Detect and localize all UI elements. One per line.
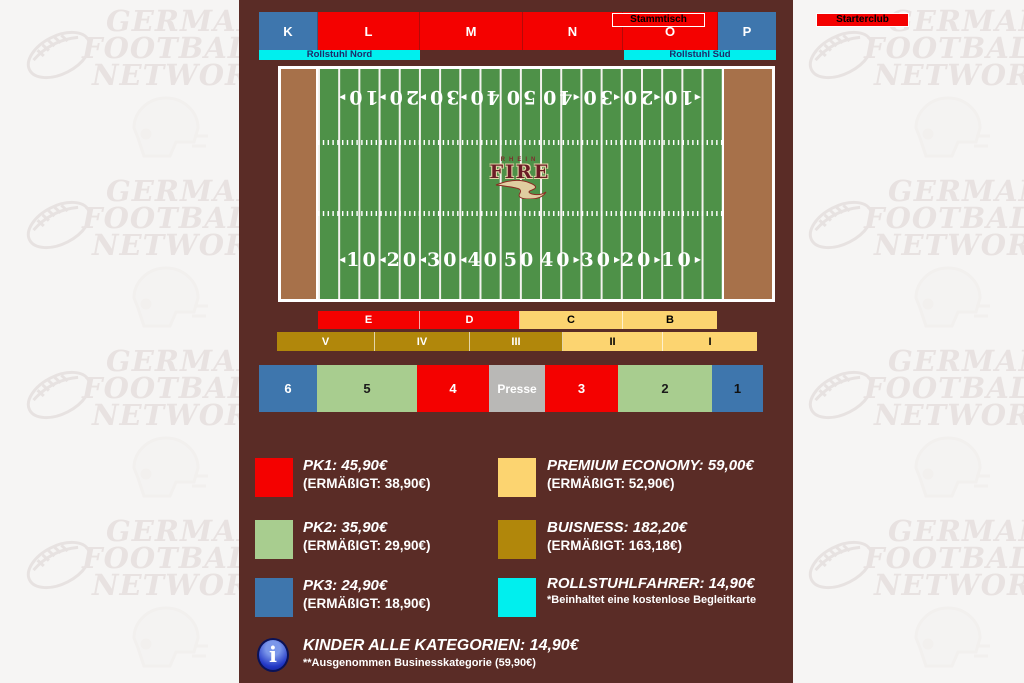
section-4: 4 [417,365,489,412]
yard-number: 30▶ [419,84,460,110]
watermark-tile: GERMAN FOOTBALL NETWORK [24,346,234,511]
watermark-tile: GERMAN FOOTBALL NETWORK [806,6,1016,171]
section-iv: IV [375,332,470,351]
stand-section-n: N [523,12,623,50]
wheelchair-zone-north: Rollstuhl Nord [259,50,420,60]
yard-number: ◀10 [338,247,379,273]
legend-note: *Beinhaltet eine kostenlose Begleitkarte [547,593,756,608]
section-e: E [318,311,420,329]
yard-number: 50 [504,84,536,110]
legend-title: KINDER ALLE KATEGORIEN: 14,90€ [303,636,579,656]
stand-section-m: M [420,12,523,50]
endzone-right [722,69,772,299]
section-1: 1 [712,365,763,412]
yard-number: 40▶ [540,247,581,273]
yard-number: ◀40 [459,247,500,273]
yard-number: 10▶ [338,84,379,110]
yard-number: 20▶ [621,247,662,273]
legend-swatch-business [498,520,536,559]
legend-subtitle: (ERMÄßIGT: 18,90€) [303,595,431,613]
yard-numbers-bottom: ◀10◀20◀30◀405040▶30▶20▶10▶ [318,247,722,273]
section-i: I [663,332,757,351]
section-d: D [420,311,520,329]
seating-chart-poster: { "top_stand": { "sections": [ { "label"… [0,0,1024,683]
helmet-icon [906,434,996,504]
yard-numbers-top: ◀10◀20◀30◀405040▶30▶20▶10▶ [318,84,722,110]
yard-number: 30▶ [580,247,621,273]
legend-item-premium: PREMIUM ECONOMY: 59,00€ (ERMÄßIGT: 52,90… [547,456,754,493]
legend-item-pk3: PK3: 24,90€ (ERMÄßIGT: 18,90€) [303,576,431,613]
info-icon: i [257,638,289,672]
football-field: ◀10◀20◀30◀405040▶30▶20▶10▶ ◀10◀20◀30◀405… [278,66,775,302]
helmet-icon [124,94,214,164]
stand-section-k: K [259,12,318,50]
section-2: 2 [618,365,712,412]
section-6: 6 [259,365,317,412]
yard-number: ◀40 [540,84,581,110]
section-b: B [623,311,717,329]
watermark-line: NETWORK [864,572,1024,599]
legend-item-pk1: PK1: 45,90€ (ERMÄßIGT: 38,90€) [303,456,431,493]
watermark-line: NETWORK [864,232,1024,259]
legend-title: PK1: 45,90€ [303,456,431,475]
legend-swatch-wheelchair [498,578,536,617]
helmet-icon [906,604,996,674]
yard-number: ◀10 [661,84,702,110]
stand-section-p: P [718,12,776,50]
legend-item-wheelchair: ROLLSTUHLFAHRER: 14,90€ *Beinhaltet eine… [547,574,756,608]
watermark-text: GERMAN FOOTBALL NETWORK [864,178,1024,259]
team-logo: RHEIN FIRE [460,157,580,204]
wheelchair-zone-south: Rollstuhl Süd [624,50,776,60]
legend-title: PK3: 24,90€ [303,576,431,595]
yard-number: ◀30 [581,84,622,110]
yard-number: ◀20 [621,84,662,110]
legend-title: BUISNESS: 182,20€ [547,518,687,537]
legend-item-kinder: KINDER ALLE KATEGORIEN: 14,90€ **Ausgeno… [303,636,579,671]
legend-item-pk2: PK2: 35,90€ (ERMÄßIGT: 29,90€) [303,518,431,555]
section-v: V [277,332,375,351]
watermark-tile: GERMAN FOOTBALL NETWORK [806,516,1016,681]
watermark-tile: GERMAN FOOTBALL NETWORK [806,346,1016,511]
legend-title: PREMIUM ECONOMY: 59,00€ [547,456,754,475]
watermark-tile: GERMAN FOOTBALL NETWORK [24,176,234,341]
starterclub-box: Starterclub [816,13,909,27]
watermark-tile: GERMAN FOOTBALL NETWORK [24,516,234,681]
yard-number: ◀20 [378,247,419,273]
legend-subtitle: (ERMÄßIGT: 29,90€) [303,537,431,555]
legend-subtitle: (ERMÄßIGT: 52,90€) [547,475,754,493]
watermark-tile: GERMAN FOOTBALL NETWORK [806,176,1016,341]
watermark-line: NETWORK [864,62,1024,89]
legend-swatch-pk3 [255,578,293,617]
flame-icon [492,179,548,199]
legend-title: ROLLSTUHLFAHRER: 14,90€ [547,574,756,593]
helmet-icon [124,434,214,504]
yard-number: 50 [504,247,536,273]
section-presse: Presse [489,365,545,412]
watermark-text: GERMAN FOOTBALL NETWORK [864,518,1024,599]
watermark-line: NETWORK [864,402,1024,429]
legend-swatch-pk2 [255,520,293,559]
hash-marks-bottom [318,211,722,216]
hash-marks-top [318,140,722,145]
endzone-left [281,69,318,299]
legend-subtitle: (ERMÄßIGT: 163,18€) [547,537,687,555]
helmet-icon [124,264,214,334]
watermark-text: GERMAN FOOTBALL NETWORK [864,348,1024,429]
watermark-tile: GERMAN FOOTBALL NETWORK [24,6,234,171]
section-3: 3 [545,365,618,412]
section-iii: III [470,332,563,351]
stadium-map-panel: K L M N O P Stammtisch Starterclub Rolls… [239,0,793,683]
section-5: 5 [317,365,417,412]
stand-section-l: L [318,12,420,50]
gridiron: ◀10◀20◀30◀405040▶30▶20▶10▶ ◀10◀20◀30◀405… [318,69,722,299]
section-c: C [520,311,623,329]
legend-swatch-premium [498,458,536,497]
legend-item-business: BUISNESS: 182,20€ (ERMÄßIGT: 163,18€) [547,518,687,555]
section-ii: II [563,332,663,351]
helmet-icon [906,94,996,164]
helmet-icon [124,604,214,674]
yard-number: ◀30 [419,247,460,273]
yard-number: 40▶ [459,84,500,110]
legend-subtitle: (ERMÄßIGT: 38,90€) [303,475,431,493]
legend-swatch-pk1 [255,458,293,497]
legend-note: **Ausgenommen Businesskategorie (59,90€) [303,656,579,671]
helmet-icon [906,264,996,334]
stammtisch-box: Stammtisch [612,13,705,27]
legend-title: PK2: 35,90€ [303,518,431,537]
yard-number: 10▶ [661,247,702,273]
yard-number: 20▶ [379,84,420,110]
